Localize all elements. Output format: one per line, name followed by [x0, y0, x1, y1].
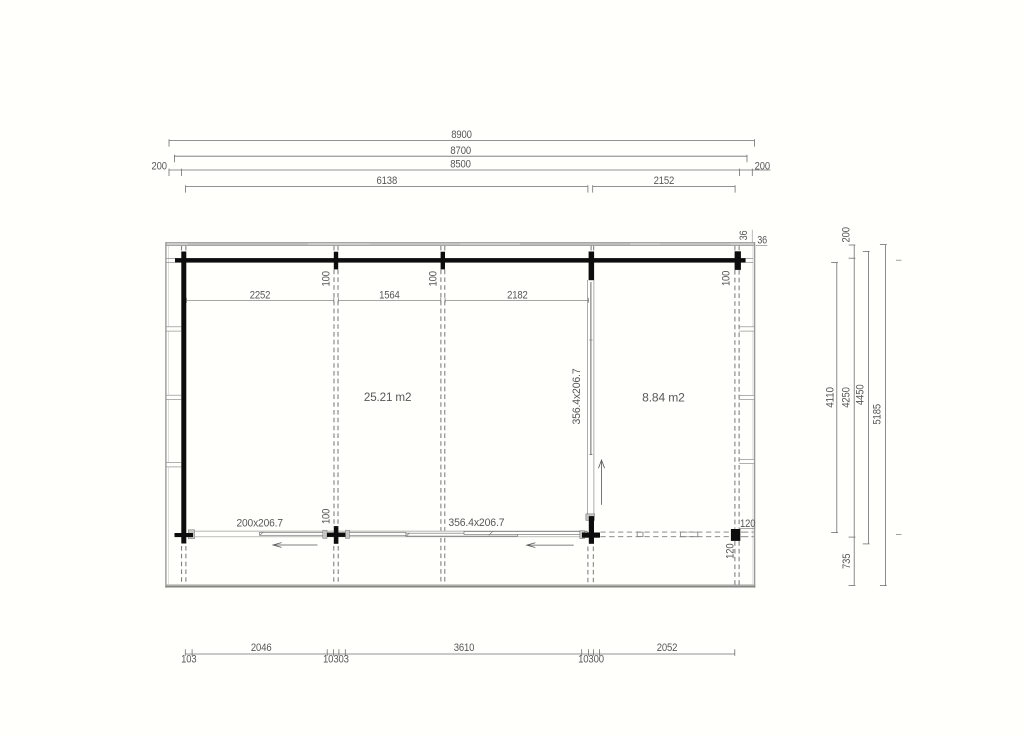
svg-text:36: 36	[757, 234, 767, 246]
svg-text:8.84 m2: 8.84 m2	[642, 391, 685, 405]
svg-text:4450: 4450	[855, 384, 867, 405]
svg-text:100: 100	[320, 271, 332, 287]
svg-text:8700: 8700	[450, 145, 471, 157]
svg-text:4250: 4250	[841, 387, 853, 408]
svg-text:200x206.7: 200x206.7	[236, 517, 283, 529]
svg-text:8500: 8500	[450, 159, 471, 171]
svg-text:5185: 5185	[872, 404, 884, 425]
svg-text:100: 100	[321, 509, 333, 525]
svg-text:3610: 3610	[454, 642, 475, 654]
svg-text:356.4x206.7: 356.4x206.7	[448, 517, 504, 529]
svg-text:2052: 2052	[657, 642, 678, 654]
svg-text:200: 200	[152, 161, 168, 173]
svg-text:4110: 4110	[825, 387, 837, 408]
svg-text:10303: 10303	[323, 654, 349, 666]
svg-text:120: 120	[740, 518, 756, 530]
svg-text:36: 36	[738, 230, 750, 240]
svg-text:8900: 8900	[451, 129, 472, 141]
svg-text:2182: 2182	[507, 289, 528, 301]
svg-text:100: 100	[720, 271, 732, 287]
svg-text:356.4x206.7: 356.4x206.7	[571, 368, 583, 424]
svg-text:735: 735	[841, 553, 853, 569]
svg-text:100: 100	[427, 271, 439, 287]
svg-text:200: 200	[755, 160, 771, 172]
svg-text:2252: 2252	[250, 289, 271, 301]
svg-text:103: 103	[181, 654, 197, 666]
svg-text:2152: 2152	[654, 175, 675, 187]
svg-text:25.21 m2: 25.21 m2	[364, 390, 412, 404]
svg-text:6138: 6138	[377, 175, 398, 187]
svg-text:10300: 10300	[578, 654, 604, 666]
svg-text:200: 200	[841, 227, 853, 243]
svg-text:1564: 1564	[379, 289, 400, 301]
svg-text:2046: 2046	[251, 642, 272, 654]
